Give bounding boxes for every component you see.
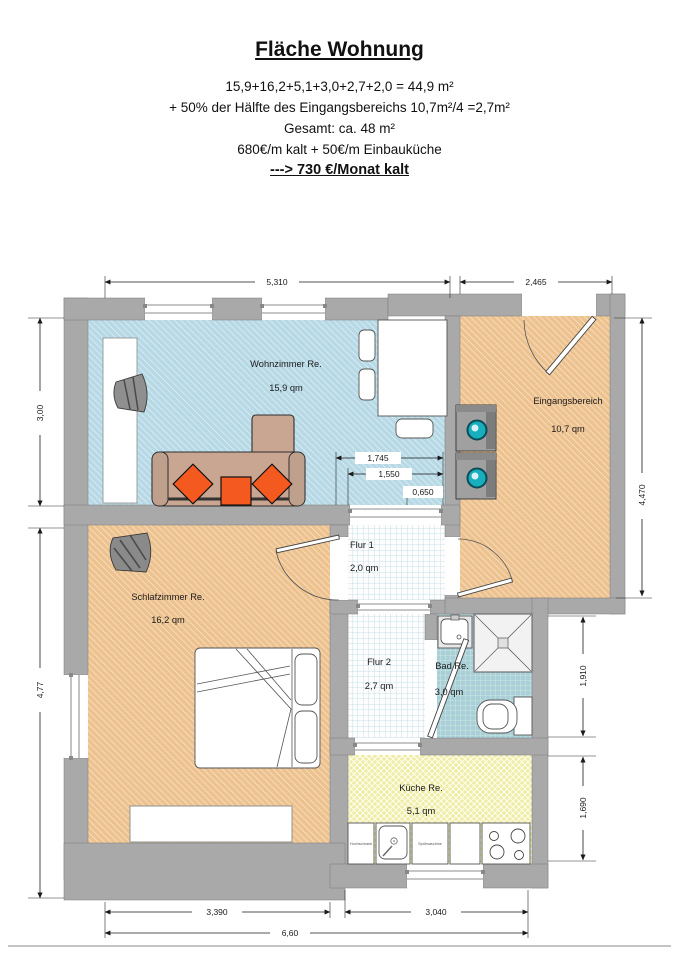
window-bedroom	[64, 673, 88, 760]
living-cabinet	[103, 338, 137, 503]
bed	[195, 648, 320, 768]
entrance-share-line: + 50% der Hälfte des Eingangsbereichs 10…	[0, 97, 679, 118]
area-sum-line: 15,9+16,2+5,1+3,0+2,7+2,0 = 44,9 m²	[0, 76, 679, 97]
kitchen-sink	[376, 823, 410, 864]
room-flur2	[348, 614, 425, 738]
opening-flur1-flur2	[356, 600, 432, 614]
label-eingangsbereich-area: 10,7 qm	[551, 424, 585, 434]
dim-inner-a: 1,745	[367, 453, 389, 463]
dim-left-bedroom: 4,77	[35, 681, 45, 698]
dim-right-bath: 1,910	[578, 665, 588, 687]
rent-total-line: ---> 730 €/Monat kalt	[0, 160, 679, 181]
dim-bottom-kitchen: 3,040	[425, 907, 447, 917]
label-bad-area: 3,0 qm	[435, 687, 464, 697]
label-wohnzimmer: Wohnzimmer Re.	[250, 359, 322, 369]
dim-right-kitchen: 1,690	[578, 797, 588, 819]
label-flur1-area: 2,0 qm	[350, 563, 379, 573]
toilet	[477, 697, 532, 735]
label-schlafzimmer: Schlafzimmer Re.	[131, 592, 204, 602]
kitchen-counter	[450, 823, 480, 864]
window-kitchen	[405, 864, 485, 888]
shower	[474, 614, 532, 672]
dim-top-living: 5,310	[266, 277, 288, 287]
rent-line: 680€/m kalt + 50€/m Einbauküche	[0, 139, 679, 160]
opening-living-flur1	[348, 505, 443, 525]
dim-top-entrance: 2,465	[525, 277, 547, 287]
label-flur2-area: 2,7 qm	[365, 681, 394, 691]
label-flur1: Flur 1	[350, 540, 374, 550]
label-schlafzimmer-area: 16,2 qm	[151, 615, 185, 625]
stove	[482, 823, 530, 864]
floor-plan-page: Fläche Wohnung 15,9+16,2+5,1+3,0+2,7+2,0…	[0, 0, 679, 960]
label-kitchen-dishwasher: Spülmaschine	[418, 842, 442, 846]
page-title: Fläche Wohnung	[0, 38, 679, 62]
total-area-line: Gesamt: ca. 48 m²	[0, 118, 679, 139]
bedroom-tv-icon	[110, 533, 151, 572]
dim-bottom-total: 6,60	[282, 928, 299, 938]
opening-flur2-kueche	[353, 738, 422, 755]
dim-inner-c: 0,650	[412, 487, 434, 497]
label-wohnzimmer-area: 15,9 qm	[269, 383, 303, 393]
label-eingangsbereich: Eingangsbereich	[533, 396, 602, 406]
window-living-left	[143, 298, 214, 320]
sideboard	[130, 806, 292, 842]
label-flur2: Flur 2	[367, 657, 391, 667]
dim-left-living: 3,00	[35, 404, 45, 421]
dim-inner-b: 1,550	[378, 469, 400, 479]
plan-header: Fläche Wohnung 15,9+16,2+5,1+3,0+2,7+2,0…	[0, 38, 679, 181]
dim-right-entrance: 4,470	[637, 484, 647, 506]
label-kueche: Küche Re.	[399, 783, 442, 793]
label-kitchen-cabinet: Hochschrank	[350, 842, 372, 846]
window-living-right	[260, 298, 327, 320]
label-kueche-area: 5,1 qm	[407, 806, 436, 816]
label-bad: Bad Re.	[435, 661, 469, 671]
dim-bottom-bedroom: 3,390	[206, 907, 228, 917]
